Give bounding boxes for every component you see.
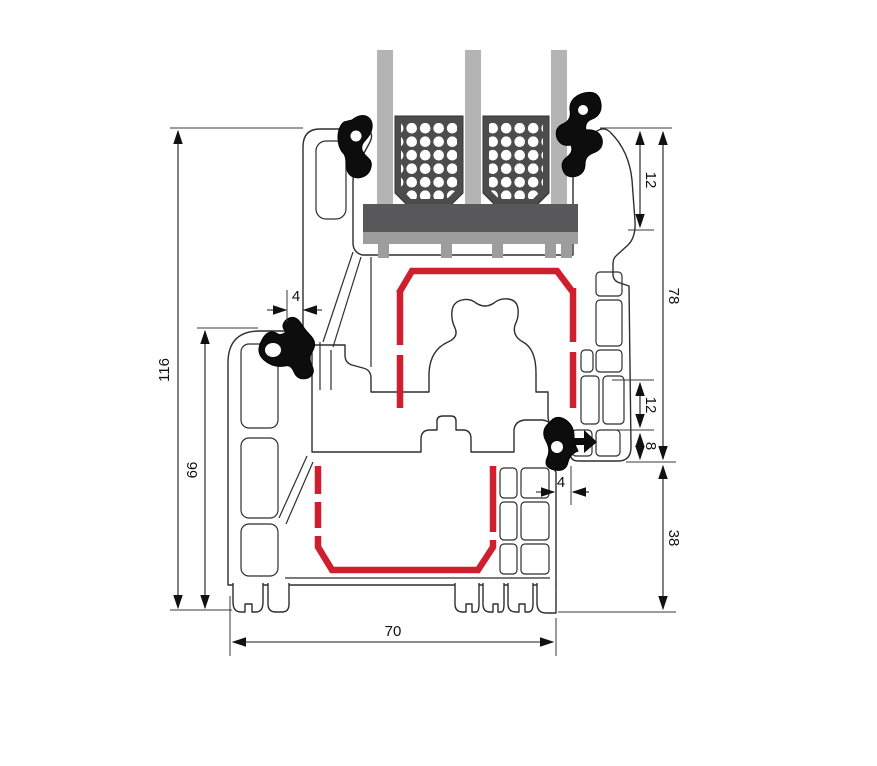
dim-label-8: 8 [642, 442, 659, 450]
glass-unit [363, 50, 578, 258]
dim-label-4-top: 4 [292, 288, 300, 305]
dim-label-4-bottom: 4 [557, 474, 565, 491]
bridge-leg [492, 244, 503, 258]
spacer-dots [401, 123, 457, 199]
frame-foot [233, 583, 263, 612]
frame-foot [268, 583, 289, 612]
spacer-bar-1 [395, 116, 463, 205]
frame-foot [483, 583, 504, 612]
window-profile-cross-section-diagram: 116 66 12 78 12 8 38 70 4 4 [0, 0, 877, 766]
frame-upstand-line [320, 342, 331, 390]
bridge-leg [441, 244, 452, 258]
frame-foot [537, 583, 556, 613]
dim-label-78: 78 [665, 288, 682, 305]
gasket-hole [265, 343, 281, 357]
glazing-block [363, 204, 578, 232]
dim-label-116: 116 [156, 358, 173, 382]
dim-label-12-top: 12 [642, 172, 659, 189]
dim-label-70: 70 [385, 623, 402, 640]
bridge-leg [561, 244, 572, 258]
bridge-leg [378, 244, 389, 258]
spacer-dots [489, 123, 543, 199]
gasket-hole [351, 131, 362, 142]
gasket-hole [578, 105, 588, 115]
glazing-bridge [363, 232, 578, 244]
dim-label-38: 38 [665, 530, 682, 547]
gasket-hole [551, 441, 563, 453]
spacer-bar-2 [483, 116, 549, 205]
frame-foot [455, 583, 479, 612]
dim-label-66: 66 [184, 462, 201, 479]
frame-foot [508, 583, 533, 612]
dim-label-12-mid: 12 [642, 397, 659, 414]
bridge-leg [545, 244, 556, 258]
